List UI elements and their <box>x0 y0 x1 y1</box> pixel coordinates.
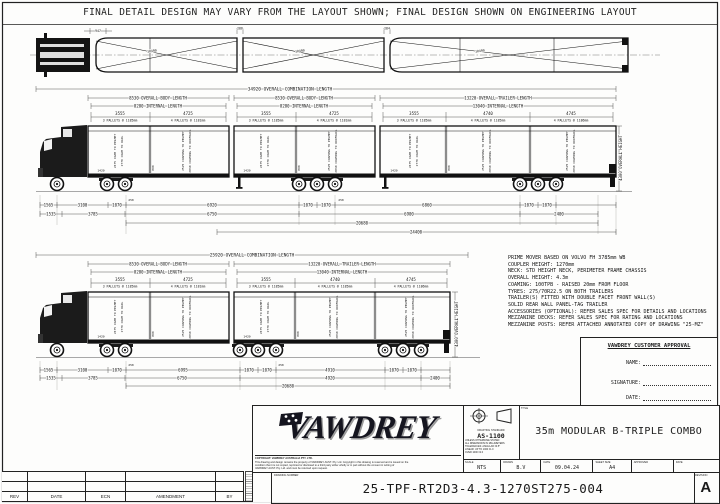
title-cell: TITLE 35m MODULAR B-TRIPLE COMBO <box>519 406 719 459</box>
dim-label: 4725 <box>329 111 339 116</box>
dim-label: 3100 <box>78 202 88 207</box>
dim-label: 6860 <box>422 202 432 207</box>
spec-line: MEZZANINE POSTS: REFER ATTACHED ANNOTATE… <box>508 322 707 329</box>
pallet-note: 4 PALLETS @ 1185mm <box>471 119 506 123</box>
interior-label: 2830 COAMING TO ROOFRAIL <box>488 129 492 173</box>
spec-line: PRIME MOVER BASED ON VOLVO FH 3785mm WB <box>508 255 707 262</box>
interior-label: 2525 COAMING TO PELMET <box>481 131 485 171</box>
rev-empty-cell <box>28 482 86 492</box>
interior-label: 2770 COAM TO RAIL <box>120 135 124 166</box>
interior-label: 2525 COAMING TO PELMET <box>181 297 185 337</box>
dim-label: 8530 OVERALL BODY LENGTH <box>129 95 187 100</box>
approval-name-row: NAME: <box>626 360 711 366</box>
interior-label: 2770 COAM TO RAIL <box>120 301 124 332</box>
revision-table: REV DATE ECN AMENDMENT BY <box>2 471 244 502</box>
rev-empty-cell <box>28 472 86 482</box>
dim-label: 8530 OVERALL BODY LENGTH <box>275 95 333 100</box>
spec-line: TYRES: 275/70R22.5 ON BOTH TRAILERS <box>508 289 707 296</box>
approved-label: APPROVED <box>634 461 648 464</box>
interior-label: 2525 COAMING TO PELMET <box>181 131 185 171</box>
approval-signature-row: SIGNATURE: <box>611 380 711 386</box>
sheet-size-value: A4 <box>593 465 630 471</box>
dim-label: 4920 <box>325 375 335 380</box>
drawing-sheet: 947 10499 286 10499 284 10499 34920 OVER… <box>0 0 720 504</box>
dim-label: 4745 <box>566 111 576 116</box>
dim-label: 34920 OVERALL COMBINATION LENGTH <box>248 86 333 92</box>
name-label: NAME: <box>626 360 641 366</box>
dim-label: 13040 INTERNAL LENGTH <box>317 269 368 274</box>
dim-label: 286 <box>237 27 243 31</box>
dim-label: 2400 <box>430 375 440 380</box>
spec-line: OVERALL HEIGHT: 4.3m <box>508 275 707 282</box>
dim-label: 6750 <box>177 375 187 380</box>
lower-side-view: 25920 OVERALL COMBINATION LENGTH 8530 OV… <box>36 252 480 390</box>
rev-empty-cell <box>216 482 244 492</box>
pallet-note: 4 PALLETS @ 1186mm <box>394 285 429 289</box>
dim-label: 1070 <box>321 202 331 207</box>
dim-label: 8280 INTERNAL LENGTH <box>134 269 183 274</box>
interior-label: 2475 COAM TO PELMET <box>113 134 117 169</box>
interior-label: 800 <box>296 331 300 337</box>
customer-approval-box: VAWDREY CUSTOMER APPROVAL NAME: SIGNATUR… <box>580 337 718 409</box>
dim-label: 1070 <box>112 202 122 207</box>
signature-label: SIGNATURE: <box>611 380 641 386</box>
truck-cab-plan <box>36 33 90 77</box>
signature-field[interactable] <box>643 380 711 386</box>
rev-empty-cell <box>126 472 216 482</box>
upper-side-view: 34920 OVERALL COMBINATION LENGTH 8530 OV… <box>36 86 632 235</box>
spec-line: TRAILER(S) FITTED WITH DOUBLE FACET FRON… <box>508 295 707 302</box>
date-label: DATE <box>543 461 550 464</box>
rev-header: BY <box>216 492 244 502</box>
interior-label: 2475 COAM TO PELMET <box>259 134 263 169</box>
interior-label: 800 <box>151 331 155 337</box>
scale-row: SCALE NTS DRAWN B.V DATE 09.04.24 SHEET … <box>463 459 719 473</box>
pallet-note: 4 PALLETS @ 1185mm <box>318 285 353 289</box>
interior-label: 2830 COAMING TO ROOFRAIL <box>572 129 576 173</box>
rev-empty-cell <box>86 482 126 492</box>
rev-header: AMENDMENT <box>126 492 216 502</box>
name-field[interactable] <box>643 360 711 366</box>
dim-label: 250 <box>128 363 134 367</box>
dim-label: 1565 <box>44 367 54 372</box>
interior-label: 2475 COAM TO PELMET <box>259 300 263 335</box>
dim-label: 250 <box>278 363 284 367</box>
dim-label: 6750 <box>207 211 217 216</box>
dim-label: 8530 OVERALL BODY LENGTH <box>129 261 187 266</box>
revision-label: REVISION <box>695 474 707 477</box>
interior-label: 2525 COAMING TO PELMET <box>327 131 331 171</box>
interior-label: 800 <box>297 165 301 171</box>
spec-line: COAMING: 100TPB - RAISED 20mm FROM FLOOR <box>508 282 707 289</box>
interior-label: 1420 <box>243 335 250 339</box>
pallet-note: 3 PALLETS @ 1185mm <box>249 119 284 123</box>
date-value: 09.04.24 <box>541 465 592 471</box>
dim-label: 1535 <box>46 211 56 216</box>
dim-label: 13220 OVERALL TRAILER LENGTH <box>464 95 532 100</box>
dim-label: 947 <box>95 29 101 33</box>
interior-label: 800 <box>447 165 451 171</box>
dim-label: 1070 <box>407 367 417 372</box>
date-label: DATE: <box>626 395 641 401</box>
interior-label: 2830 COAMING TO ROOFRAIL <box>335 295 339 339</box>
title-label: TITLE <box>521 407 528 410</box>
dim-label: 4300 OVERALL HEIGHT <box>618 135 623 181</box>
dim-label: 6995 <box>178 367 188 372</box>
interior-labels: 2475 COAM TO PELMET 2770 COAM TO RAIL 14… <box>97 295 415 339</box>
pallet-note: 4 PALLETS @ 1181mm <box>171 285 206 289</box>
interior-label: 2525 COAMING TO PELMET <box>565 131 569 171</box>
wheels <box>291 178 564 191</box>
sheet-size-label: SHEET SIZE <box>595 461 610 464</box>
approval-title: VAWDREY CUSTOMER APPROVAL <box>581 343 717 349</box>
dim-label: 3555 <box>115 111 125 116</box>
interior-label: 2770 COAM TO RAIL <box>266 301 270 332</box>
approved-date-label: DATE <box>676 461 683 464</box>
interior-label: 2475 COAM TO PELMET <box>113 300 117 335</box>
dim-label: 1070 <box>262 367 272 372</box>
dim-label: 1070 <box>112 367 122 372</box>
truck-cab <box>38 291 133 357</box>
spec-line: COUPLER HEIGHT: 1270mm <box>508 262 707 269</box>
dim-label: 250 <box>338 198 344 202</box>
dim-label: 4725 <box>183 111 193 116</box>
interior-label: 1420 <box>243 169 250 173</box>
pallet-note: 3 PALLETS @ 1185mm <box>103 119 138 123</box>
dim-label: 4910 <box>325 367 335 372</box>
spec-notes: PRIME MOVER BASED ON VOLVO FH 3785mm WB … <box>508 255 707 329</box>
interior-label: 2475 COAM TO PELMET <box>408 134 412 169</box>
checkered-flag-icon <box>279 412 305 426</box>
rev-empty-cell <box>216 472 244 482</box>
tolerance-line: OVER 1000 ±2.0 <box>465 452 519 455</box>
interior-label: 2770 COAM TO RAIL <box>266 135 270 166</box>
pallet-note: 4 PALLETS @ 1181mm <box>171 119 206 123</box>
rev-empty-cell <box>2 472 28 482</box>
spec-line: NECK: STD HEIGHT NECK, PERIMETER FRAME C… <box>508 268 707 275</box>
interior-label: 2525 COAMING TO PELMET <box>404 297 408 337</box>
dim-label: 3555 <box>409 111 419 116</box>
dim-label: 1565 <box>44 202 54 207</box>
dim-label: 24400 <box>410 229 423 234</box>
revision-cell: REVISION A <box>693 472 720 504</box>
dim-label: 8280 INTERNAL LENGTH <box>280 103 329 108</box>
dim-label: 6900 <box>404 211 414 216</box>
interior-label: 2830 COAMING TO ROOFRAIL <box>411 295 415 339</box>
copyright-note: COPYRIGHT: VAWDREY AUSTRALIA PTY. LTD. T… <box>255 455 461 470</box>
dim-label: 4725 <box>183 277 193 282</box>
dim-label: 1070 <box>542 202 552 207</box>
title-block: VAWDREY COPYRIGHT: VAWDREY AUSTRALIA PTY… <box>252 405 720 502</box>
interior-label: 2830 COAMING TO ROOFRAIL <box>334 129 338 173</box>
spec-line: ACCESSORIES (OPTIONAL): REFER SALES SPEC… <box>508 309 707 316</box>
drawing-number-label: DRAWING NUMBER <box>274 474 298 477</box>
interior-label: 800 <box>151 165 155 171</box>
dim-label: 3100 <box>78 367 88 372</box>
pallet-note: 4 PALLETS @ 1186mm <box>554 119 589 123</box>
dim-label: 20680 <box>356 220 369 225</box>
interior-labels: 2475 COAM TO PELMET 2770 COAM TO RAIL 14… <box>97 129 576 173</box>
dim-label: 1070 <box>303 202 313 207</box>
dim-label: 4740 <box>483 111 493 116</box>
drawn-label: DRAWN <box>503 461 513 464</box>
dim-label: 4300 OVERALL HEIGHT <box>454 301 459 347</box>
dim-label: 8280 INTERNAL LENGTH <box>134 103 183 108</box>
rev-empty-cell <box>86 472 126 482</box>
scale-value: NTS <box>463 465 500 471</box>
dim-label: 3555 <box>115 277 125 282</box>
interior-label: 2830 COAMING TO ROOFRAIL <box>188 295 192 339</box>
approval-date-row: DATE: <box>626 395 711 401</box>
drawing-number-cell: DRAWING NUMBER 25-TPF-RT2D3-4.3-1270ST27… <box>271 472 695 504</box>
interior-label: 1420 <box>390 169 397 173</box>
dim-label: 6920 <box>207 202 217 207</box>
dim-label: 284 <box>384 27 390 31</box>
plan-view: 947 10499 286 10499 284 10499 <box>30 27 660 78</box>
rev-empty-cell <box>2 482 28 492</box>
dim-label: 3785 <box>88 375 98 380</box>
drafting-standard-cell: DRAFTING STANDARD AS-1100 UNLESS OTHERWI… <box>463 406 520 459</box>
dim-label: 3555 <box>261 111 271 116</box>
dim-label: 2400 <box>554 211 564 216</box>
dim-label: 4745 <box>406 277 416 282</box>
logo-cell: VAWDREY COPYRIGHT: VAWDREY AUSTRALIA PTY… <box>253 406 464 473</box>
interior-label: 1420 <box>97 335 104 339</box>
rev-header: DATE <box>28 492 86 502</box>
wheels <box>232 344 429 357</box>
projection-symbol-icon <box>467 408 515 424</box>
dim-label: 10499 <box>475 48 485 53</box>
drawing-number: 25-TPF-RT2D3-4.3-1270ST275-004 <box>272 481 694 496</box>
spec-line: SOLID REAR WALL PANEL-TAG TRAILER <box>508 302 707 309</box>
interior-label: 2770 COAM TO RAIL <box>415 135 419 166</box>
dim-label: 1535 <box>46 375 56 380</box>
dim-label: 3785 <box>88 211 98 216</box>
interior-label: 1420 <box>97 169 104 173</box>
pallet-note: 3 PALLETS @ 1185mm <box>249 285 284 289</box>
dim-label: 13040 INTERNAL LENGTH <box>473 103 524 108</box>
dim-label: 4740 <box>330 277 340 282</box>
pallet-note: 3 PALLETS @ 1185mm <box>397 119 432 123</box>
dim-label: 25920 OVERALL COMBINATION LENGTH <box>210 252 295 258</box>
spec-line: MEZZANINE DECKS: REFER SALES SPEC FOR RA… <box>508 315 707 322</box>
date-field[interactable] <box>643 395 711 401</box>
interior-label: 2525 COAMING TO PELMET <box>328 297 332 337</box>
dim-label: 13220 OVERALL TRAILER LENGTH <box>308 261 376 266</box>
copyright-line: VAWDREY AUST. Pty. Ltd. and must be retu… <box>255 467 461 470</box>
rev-header: REV <box>2 492 28 502</box>
rev-header: ECN <box>86 492 126 502</box>
drawing-title: 35m MODULAR B-TRIPLE COMBO <box>519 426 719 437</box>
dim-label: 20680 <box>282 383 295 388</box>
dim-label: 250 <box>128 198 134 202</box>
dim-label: 1070 <box>244 367 254 372</box>
pallet-note: 3 PALLETS @ 1185mm <box>103 285 138 289</box>
dim-label: 1070 <box>524 202 534 207</box>
scale-label: SCALE <box>465 461 474 464</box>
revision-value: A <box>693 479 719 496</box>
interior-label: 2830 COAMING TO ROOFRAIL <box>188 129 192 173</box>
rev-empty-cell <box>126 482 216 492</box>
dim-label: 3555 <box>261 277 271 282</box>
truck-cab <box>38 125 133 191</box>
disclaimer-banner: FINAL DETAIL DESIGN MAY VARY FROM THE LA… <box>0 7 720 18</box>
pallet-note: 4 PALLETS @ 1181mm <box>317 119 352 123</box>
drawn-value: B.V <box>501 465 540 471</box>
dim-label: 1070 <box>389 367 399 372</box>
